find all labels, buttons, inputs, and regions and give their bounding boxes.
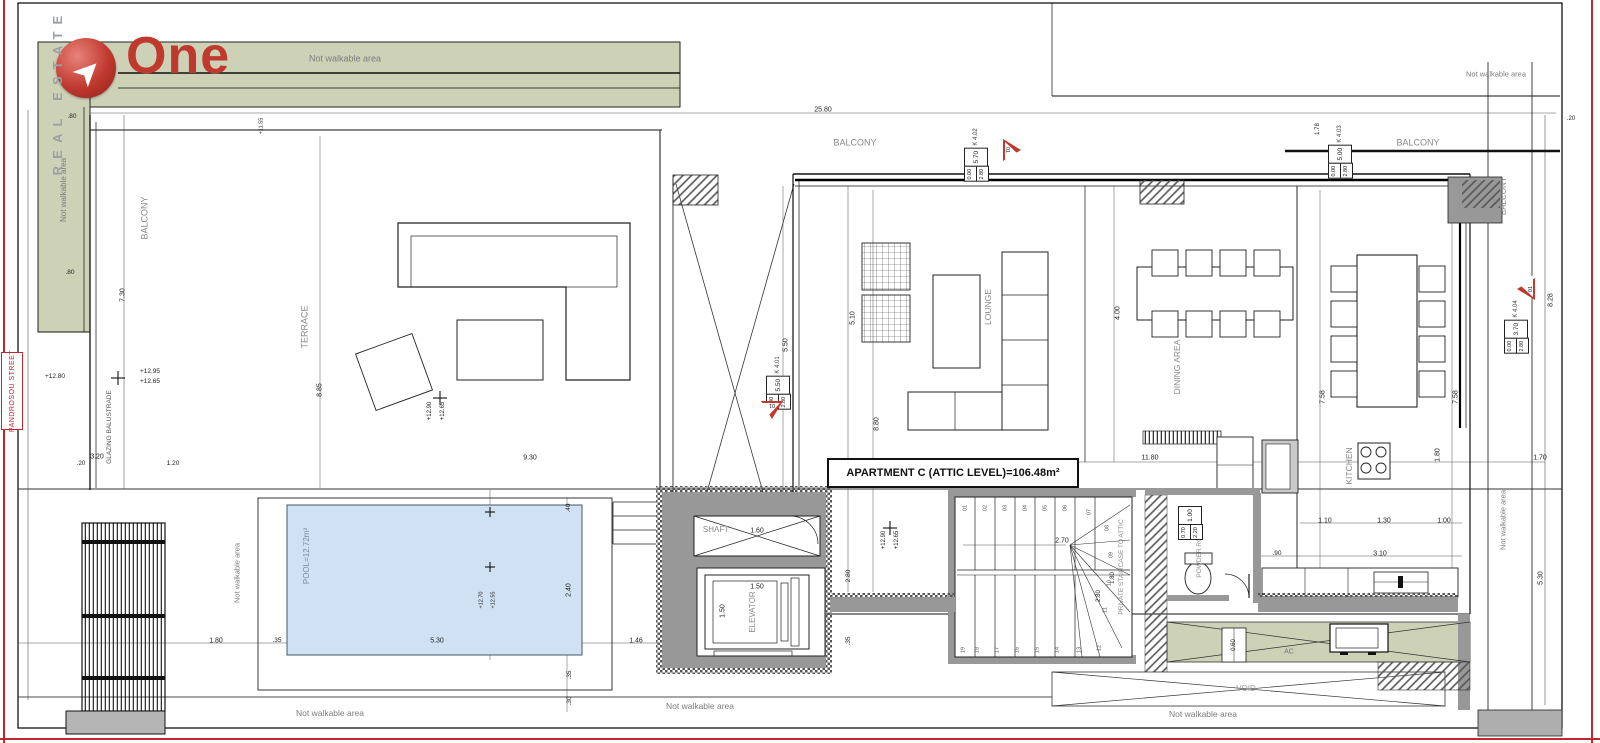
stair-step-number: 02 — [983, 505, 989, 511]
dim-label: 7.30 — [120, 288, 127, 302]
dim-label: 1.46 — [629, 638, 643, 645]
dim-label: 0.60 — [1231, 639, 1237, 651]
not-walkable-label: Not walkable area — [309, 55, 381, 64]
dim-label: 3.10 — [1373, 551, 1387, 558]
not-walkable-label: Not walkable area — [1169, 710, 1237, 719]
level-label: +12.95 — [140, 369, 160, 376]
room-label-balcony: BALCONY — [1396, 139, 1439, 148]
window-tag-value: 5.50 — [766, 376, 790, 395]
stair-step-number: 14 — [1055, 647, 1061, 653]
not-walkable-label: Not walkable area — [1466, 70, 1526, 78]
stair-step-number: 04 — [1023, 505, 1029, 511]
window-tag: 0.002.803.70K 4.04 — [1504, 300, 1528, 353]
level-label: +12.65 — [140, 379, 160, 386]
dim-label: .20 — [77, 461, 85, 467]
dim-label: 1.50 — [750, 584, 764, 591]
stair-step-number: 17 — [995, 647, 1001, 653]
dim-label: 1.30 — [1377, 518, 1391, 525]
dim-label: 8.85 — [317, 383, 324, 397]
street-label: PANDROSOU STREET — [1, 352, 23, 430]
dim-label: .20 — [1567, 116, 1575, 122]
window-tag-value: 1.00 — [1178, 506, 1202, 525]
stair-step-number: 19 — [961, 647, 967, 653]
dim-label: 3.20 — [90, 454, 104, 461]
room-label-kitchen: KITCHEN — [1345, 447, 1354, 484]
stair-step-number: 10 — [1107, 580, 1113, 586]
stair-step-number: 07 — [1087, 509, 1093, 515]
dim-label: 7.58 — [1453, 390, 1460, 404]
floor-plan-page: ➤ One REAL ESTATE PANDROSOU STREET APART… — [0, 0, 1600, 743]
stair-step-number: 01 — [963, 505, 969, 511]
triangle-label: 01 — [1528, 278, 1534, 300]
dim-label: 8.80 — [874, 417, 881, 431]
dim-label: 1.20 — [167, 461, 180, 468]
window-tag-value: 2.20 — [1190, 525, 1203, 541]
glazing-balustrade-label: GLAZING BALUSTRADE — [107, 390, 114, 464]
stair-step-number: 12 — [1097, 645, 1103, 651]
room-label-balcony: BALCONY — [1500, 177, 1508, 215]
room-label-pool: POOL=12.72m² — [303, 528, 311, 584]
dim-label: 7.58 — [1320, 390, 1327, 404]
room-label-balcony: BALCONY — [141, 196, 150, 239]
window-tag-value: 2.80 — [976, 166, 989, 182]
window-tag-value: 3.70 — [1504, 320, 1528, 339]
dim-label: 2.80 — [846, 570, 853, 583]
level-label: +12.55 — [491, 592, 497, 609]
one-real-estate-logo: ➤ One REAL ESTATE — [48, 30, 268, 125]
window-tag-value: 2.80 — [1516, 338, 1529, 354]
dim-label: 1.78 — [1315, 123, 1321, 135]
room-label-ac: AC — [1284, 649, 1294, 656]
window-tag-value: 5.70 — [964, 148, 988, 167]
room-label-terrace: TERRACE — [301, 305, 310, 348]
stair-step-number: 08 — [1105, 525, 1111, 531]
triangle-label: 01 — [761, 402, 783, 408]
dim-label: 5.30 — [1538, 571, 1545, 585]
window-tag-value: 5.00 — [1328, 145, 1352, 164]
dim-label: 1.10 — [1318, 518, 1332, 525]
logo-title: One — [126, 26, 230, 86]
level-label: +12.70 — [479, 592, 485, 609]
room-label-void: VOID — [1236, 685, 1256, 693]
dim-label: 5.50 — [783, 338, 790, 352]
stair-step-number: 18 — [975, 647, 981, 653]
level-label: +12.90 — [881, 531, 887, 550]
window-tag-value: K 4.02 — [973, 128, 979, 145]
dim-label: 2.70 — [1055, 538, 1069, 545]
dim-label: .80 — [65, 270, 74, 277]
dim-label: 1.00 — [1437, 518, 1451, 525]
apartment-area-box: APARTMENT C (ATTIC LEVEL)=106.48m² — [827, 458, 1079, 488]
dim-label: .35 — [846, 636, 853, 645]
dim-label: .35 — [272, 638, 281, 645]
dim-label: 5.10 — [850, 311, 857, 325]
dim-label: 1.80 — [1435, 448, 1442, 462]
room-label-balcony: BALCONY — [833, 139, 876, 148]
level-label: +12.80 — [45, 374, 65, 381]
dim-label: 5.30 — [430, 638, 444, 645]
window-tag: 0.702.201.00 — [1178, 504, 1202, 540]
dim-label: .30 — [567, 696, 574, 705]
dim-label: 25.80 — [814, 107, 832, 114]
window-tag-value: K 4.04 — [1513, 300, 1519, 317]
logo-subtitle: REAL ESTATE — [50, 9, 74, 176]
stair-step-number: 16 — [1015, 647, 1021, 653]
stair-step-number: 03 — [1003, 505, 1009, 511]
stair-step-number: 05 — [1043, 505, 1049, 511]
triangle-label: 01 — [1004, 139, 1010, 161]
dim-label: 11.80 — [1142, 455, 1159, 462]
room-label-elevator: ELEVATOR — [749, 591, 757, 632]
room-label-lounge: LOUNGE — [984, 289, 993, 325]
dim-label: .35 — [567, 670, 574, 679]
stair-step-number: 13 — [1077, 647, 1083, 653]
dim-label: 1.60 — [750, 528, 764, 535]
dim-label: 4.00 — [1115, 306, 1122, 320]
stair-step-number: 06 — [1063, 505, 1069, 511]
revision-triangle-marker: 01 — [761, 401, 783, 419]
stair-step-number: 09 — [1109, 552, 1115, 558]
room-label-shaft: SHAFT — [703, 526, 729, 534]
dim-label: 1.50 — [720, 604, 727, 618]
level-label: +12.65 — [894, 531, 900, 550]
revision-triangle-marker: 01 — [1003, 139, 1021, 161]
dim-label: 8.28 — [1548, 293, 1555, 307]
window-tag-value: 2.80 — [1340, 163, 1353, 179]
window-tag-value: K 4.01 — [775, 356, 781, 373]
not-walkable-label: Not walkable area — [233, 543, 241, 603]
dim-label: 2.40 — [566, 583, 573, 597]
level-label: +12.65 — [440, 402, 446, 421]
dim-label: 9.30 — [523, 455, 537, 462]
dim-label: .40 — [566, 503, 573, 512]
level-label: +12.90 — [427, 402, 433, 421]
not-walkable-label: Not walkable area — [666, 702, 734, 711]
window-tag: 0.002.805.70K 4.02 — [964, 128, 988, 181]
revision-triangle-marker: 01 — [1517, 278, 1535, 300]
dim-label: 2.80 — [1096, 590, 1102, 602]
dim-label: 1.70 — [1533, 455, 1547, 462]
room-label-staircase: PRIVATE STAIRCASE TO ATTIC — [1119, 519, 1126, 614]
dim-label: .90 — [1272, 551, 1281, 558]
window-tag-value: K 4.03 — [1337, 125, 1343, 142]
stair-step-number: 15 — [1035, 647, 1041, 653]
stair-step-number: 11 — [1103, 607, 1109, 613]
dim-label: 1.80 — [209, 638, 223, 645]
not-walkable-label: Not walkable area — [296, 709, 364, 718]
room-label-dining: DINING AREA — [1173, 340, 1182, 395]
not-walkable-label: Not walkable area — [1499, 490, 1507, 550]
window-tag: 0.002.805.00K 4.03 — [1328, 125, 1352, 178]
